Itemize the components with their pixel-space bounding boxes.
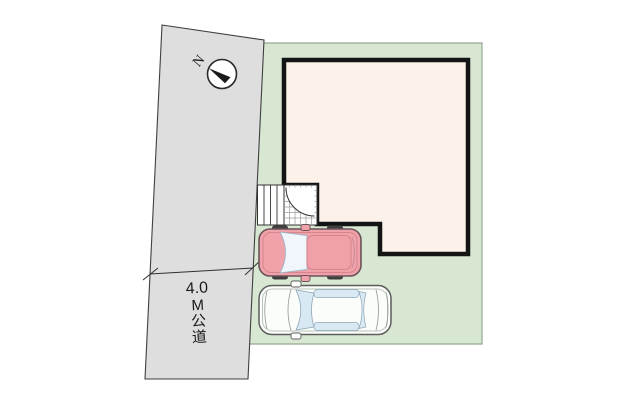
pink-car-mirror [301,225,310,231]
white-car-mirror [291,281,301,287]
white-car-side-window [314,323,359,331]
white-car-side-window [314,290,359,298]
road-label-dou: 道 [191,329,207,347]
entrance-porch [284,185,317,225]
pink-car-roof [307,236,351,270]
road-label-kou: 公 [191,313,207,331]
road: 4.0 M 公 道 [143,25,264,379]
site-plan-image: 4.0 M 公 道 N [0,0,620,404]
road-label-40: 4.0 [185,279,208,297]
white-car [259,281,391,339]
site-plan-svg: 4.0 M 公 道 N [0,0,620,404]
white-car-mirror [291,333,301,339]
road-label-m: M [191,297,204,315]
pink-car-mirror [301,276,310,282]
pink-car [259,225,361,282]
entrance-stairs [258,185,285,225]
